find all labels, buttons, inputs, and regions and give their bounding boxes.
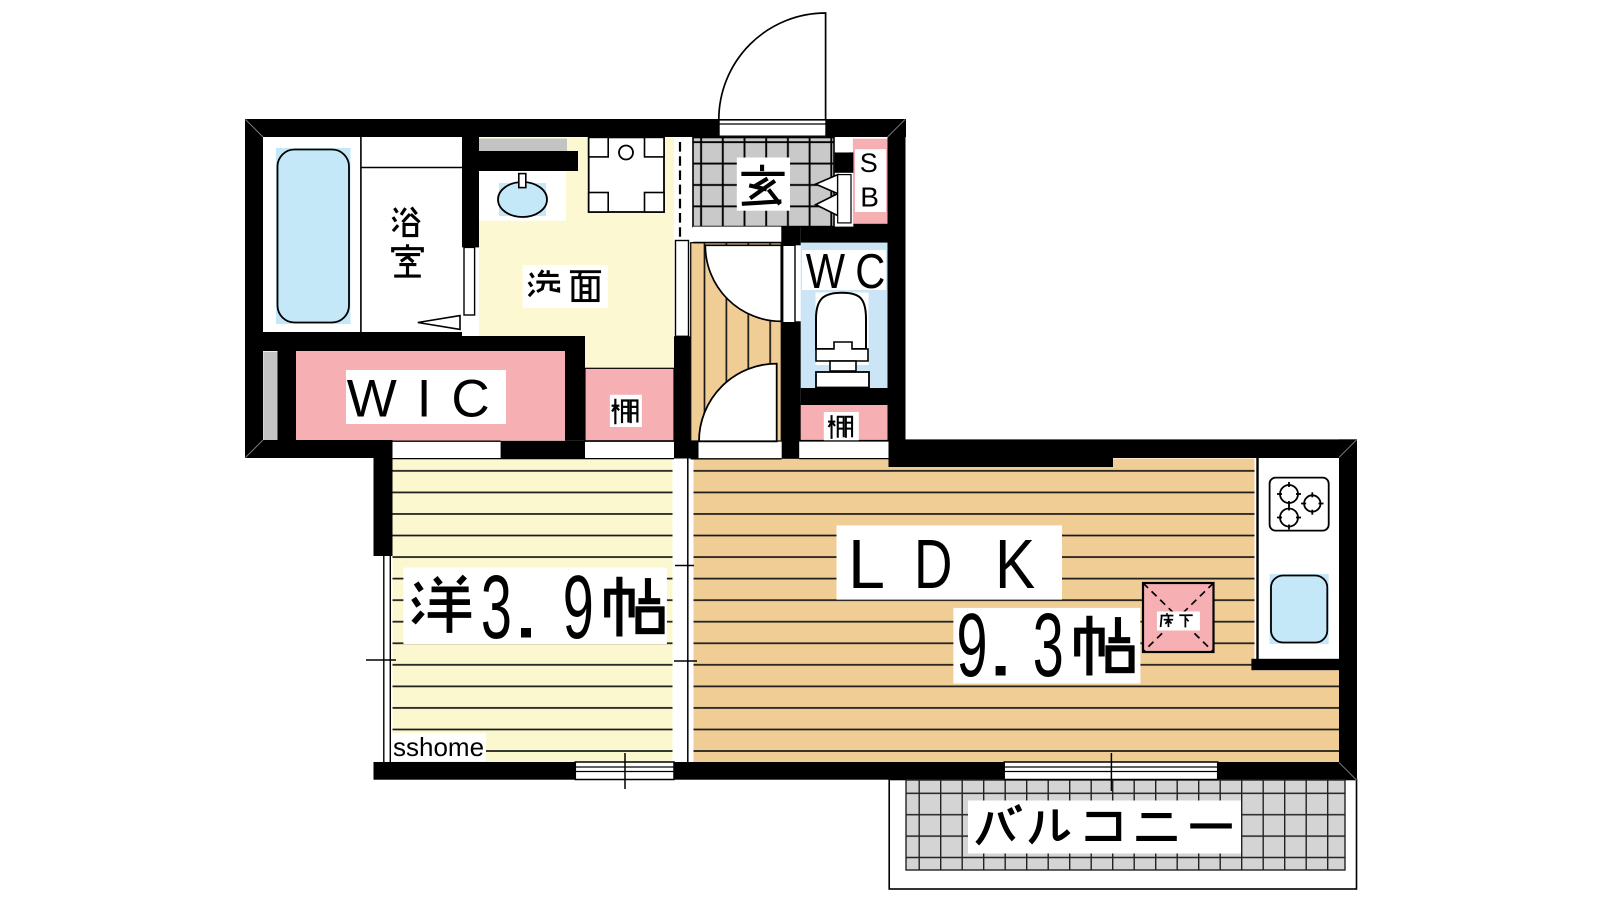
- svg-text:K: K: [995, 525, 1035, 603]
- svg-text:9: 9: [957, 594, 988, 695]
- svg-text:S: S: [860, 148, 878, 178]
- svg-text:L: L: [848, 525, 885, 603]
- svg-text:3: 3: [1033, 594, 1064, 695]
- svg-text:WIC: WIC: [347, 370, 510, 429]
- svg-text:9: 9: [563, 556, 594, 657]
- svg-text:3: 3: [481, 556, 512, 657]
- svg-text:sshome: sshome: [393, 732, 484, 762]
- svg-text:D: D: [914, 526, 952, 604]
- svg-text:WC: WC: [806, 244, 896, 299]
- svg-text:B: B: [860, 182, 879, 213]
